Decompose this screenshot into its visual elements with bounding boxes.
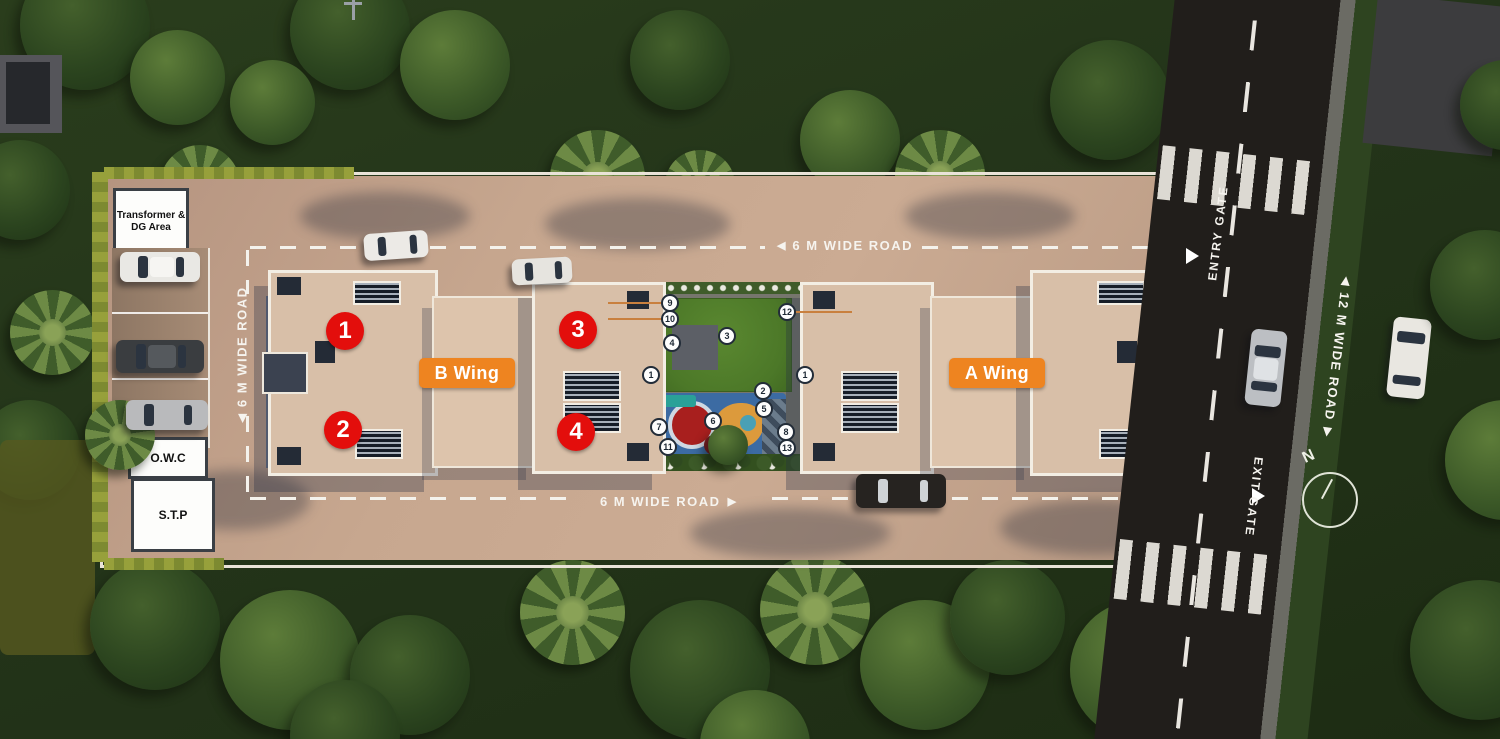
road-label-bottom: 6 M WIDE ROAD ▶ [568, 494, 768, 509]
tree [708, 425, 748, 465]
terrace-opening [813, 443, 835, 461]
car [363, 230, 429, 261]
amenity-marker: 1 [642, 366, 660, 384]
arrow-left-icon: ◀ [777, 239, 785, 252]
tree [520, 560, 625, 665]
terrace-opening [627, 443, 649, 461]
amenity-marker: 4 [663, 334, 681, 352]
tree [1410, 580, 1500, 720]
leader-line [794, 311, 852, 313]
unit-marker-2: 2 [324, 411, 362, 449]
leader-line [608, 302, 664, 304]
car [126, 400, 208, 430]
car [120, 252, 200, 282]
amenity-marker: 1 [796, 366, 814, 384]
tree-shadow [905, 192, 1075, 240]
unit-marker-3: 3 [559, 311, 597, 349]
tree-shadow [690, 508, 890, 558]
car [856, 474, 946, 508]
leader-line [608, 318, 664, 320]
tree [760, 555, 870, 665]
terrace-opening [813, 291, 835, 309]
amenity-marker: 10 [661, 310, 679, 328]
stair-skylight [841, 371, 899, 401]
tree [230, 60, 315, 145]
stp-box: S.T.P [131, 478, 215, 552]
terrace-opening [1117, 341, 1137, 363]
terrace-opening [277, 447, 301, 465]
site-plan: B Wing A Wing Transformer & DG Area O.W.… [0, 0, 1500, 739]
stair-skylight [563, 371, 621, 401]
tree [90, 560, 220, 690]
tree [400, 10, 510, 120]
hedge-bottom [104, 558, 224, 570]
arrow-right-icon: ▶ [728, 495, 736, 508]
tree [1430, 230, 1500, 340]
amenity-marker: 3 [718, 327, 736, 345]
tree-shadow [545, 198, 730, 250]
entry-gate-arrow [1186, 248, 1199, 264]
playground-shape [662, 395, 696, 407]
amenity-marker: 11 [659, 438, 677, 456]
tree [130, 30, 225, 125]
tree [630, 10, 730, 110]
transformer-dg-area-box: Transformer & DG Area [113, 188, 189, 256]
road-label-top: ◀ 6 M WIDE ROAD [770, 238, 920, 253]
tree [10, 290, 95, 375]
pond [0, 440, 95, 655]
stair-skylight [355, 429, 403, 459]
tree [1445, 400, 1500, 520]
amenity-marker: 5 [755, 400, 773, 418]
unit-marker-1: 1 [326, 312, 364, 350]
stair-skylight [1097, 281, 1145, 305]
stair-skylight [841, 403, 899, 433]
amenity-marker: 6 [704, 412, 722, 430]
playground-shape [740, 415, 756, 431]
stair-skylight [353, 281, 401, 305]
balcony-notch [262, 352, 308, 394]
arrow-down-icon: ▶ [1321, 427, 1335, 437]
arrow-up-icon: ◀ [1339, 276, 1353, 286]
utility-box-dark [6, 62, 50, 124]
tree [290, 0, 410, 90]
flower-planter-top [652, 282, 802, 294]
crosswalk-bottom [1114, 539, 1278, 616]
amenity-marker: 12 [778, 303, 796, 321]
tree [950, 560, 1065, 675]
hedge-top [104, 167, 354, 179]
tree [1050, 40, 1170, 160]
arrow-left-icon: ◀ [236, 414, 249, 422]
tree [0, 140, 70, 240]
hedge-left [92, 172, 108, 562]
amenity-marker: 7 [650, 418, 668, 436]
driveway-dash-top [250, 246, 765, 249]
crosswalk-top [1157, 145, 1320, 216]
wing-b-label: B Wing [419, 358, 515, 388]
terrace-opening [627, 291, 649, 309]
amenity-marker: 2 [754, 382, 772, 400]
amenity-marker: 13 [778, 439, 796, 457]
car [116, 340, 204, 373]
terrace-opening [277, 277, 301, 295]
wing-a-label: A Wing [949, 358, 1045, 388]
street-light [344, 2, 362, 5]
driveway-dash-top [922, 246, 1184, 249]
road-label-left: ◀ 6 M WIDE ROAD [235, 275, 250, 435]
driveway-dash-bottom [250, 497, 568, 500]
car [511, 256, 572, 285]
car [1386, 316, 1432, 400]
unit-marker-4: 4 [557, 413, 595, 451]
